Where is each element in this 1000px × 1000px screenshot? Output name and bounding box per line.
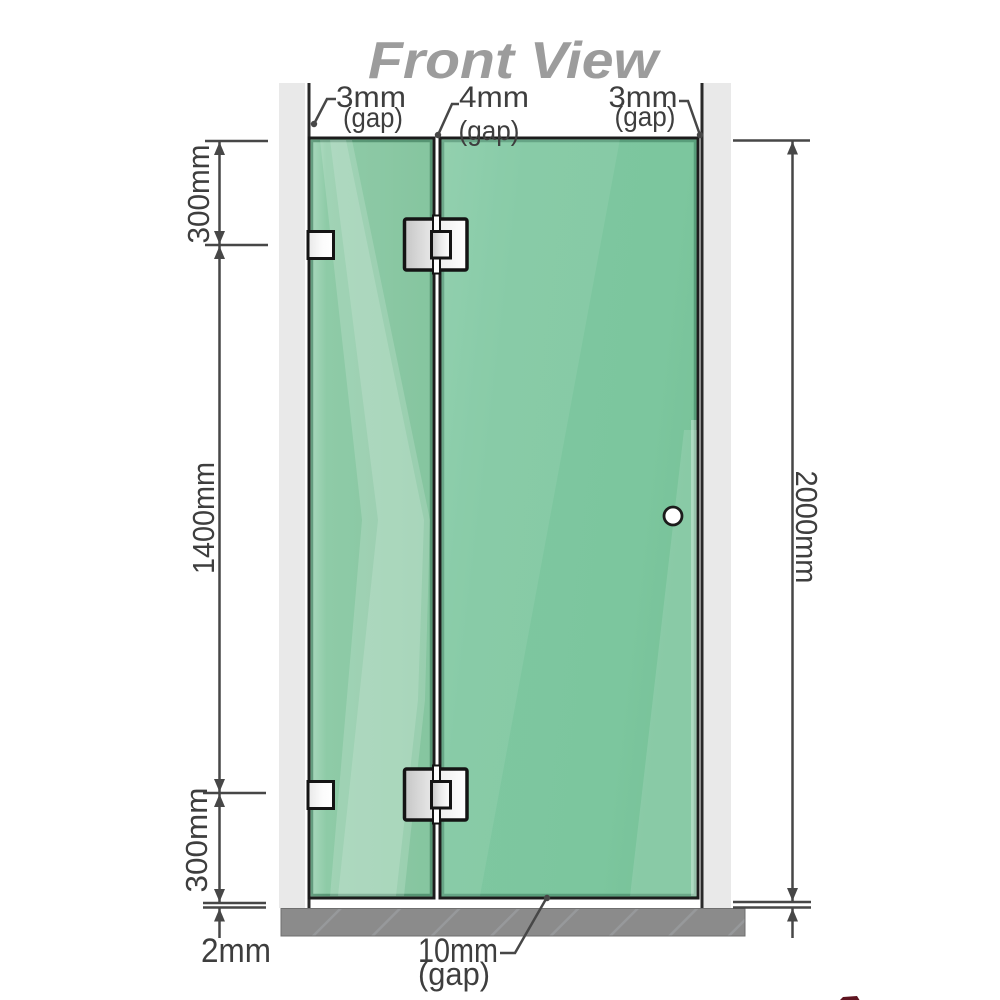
- svg-text:(gap): (gap): [343, 102, 403, 133]
- svg-text:(gap): (gap): [418, 956, 490, 992]
- svg-text:1400mm: 1400mm: [186, 462, 221, 574]
- svg-text:(gap): (gap): [615, 101, 676, 132]
- svg-text:4mm: 4mm: [459, 81, 529, 114]
- svg-text:(gap): (gap): [459, 115, 520, 146]
- svg-text:2mm: 2mm: [201, 932, 271, 970]
- svg-text:2000mm: 2000mm: [789, 471, 824, 584]
- svg-text:300mm: 300mm: [181, 145, 216, 244]
- svg-text:300mm: 300mm: [179, 788, 214, 893]
